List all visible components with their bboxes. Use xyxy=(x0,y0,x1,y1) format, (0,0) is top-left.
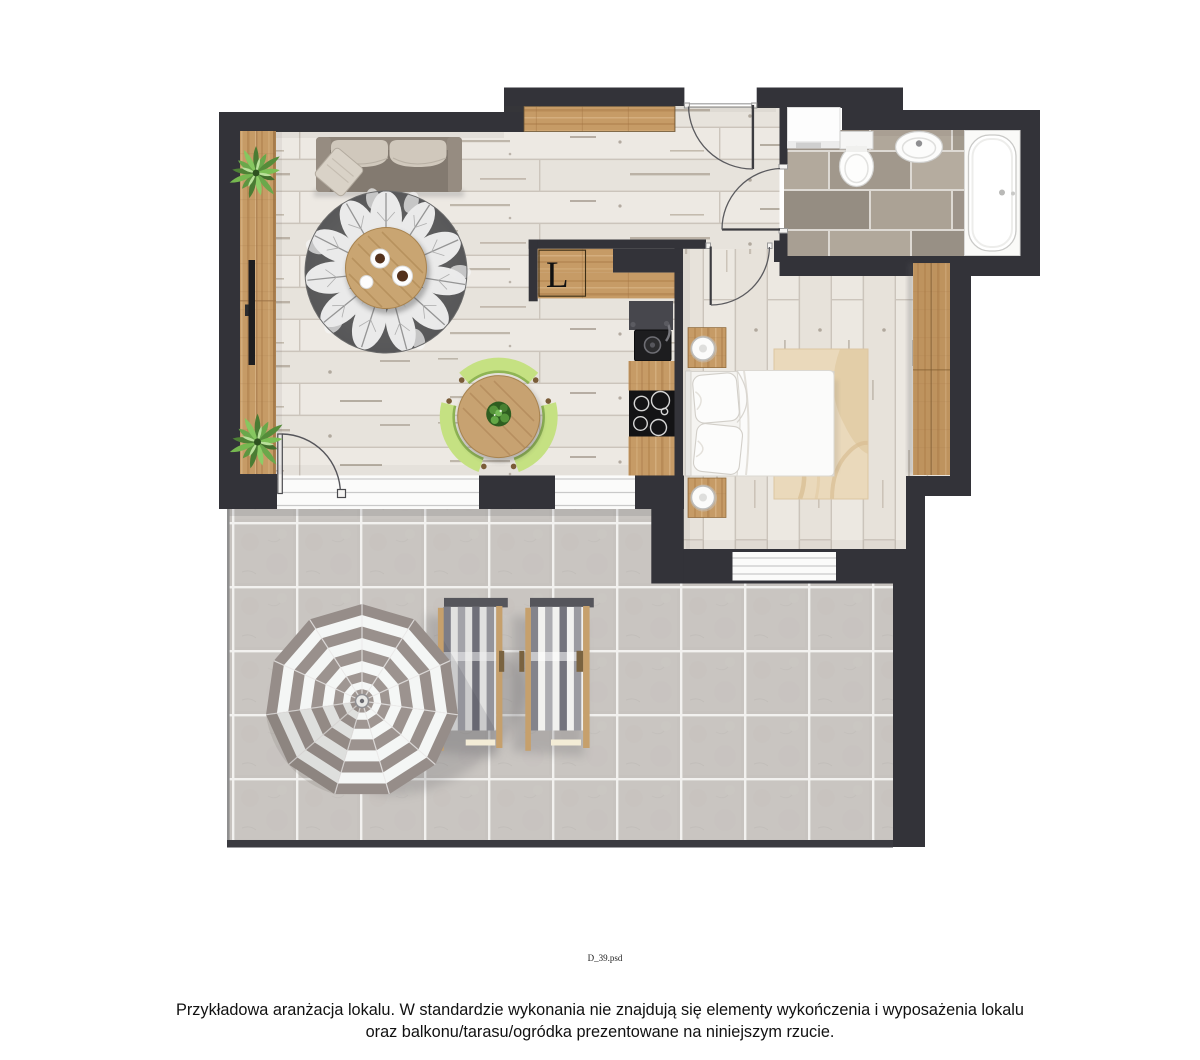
svg-text:Przykładowa aranżacja lokalu.: Przykładowa aranżacja lokalu. W standard… xyxy=(176,1001,1024,1019)
svg-text:D_39.psd: D_39.psd xyxy=(588,953,623,963)
svg-text:oraz balkonu/tarasu/ogródka pr: oraz balkonu/tarasu/ogródka prezentowane… xyxy=(366,1023,835,1041)
svg-text:L: L xyxy=(546,255,569,296)
